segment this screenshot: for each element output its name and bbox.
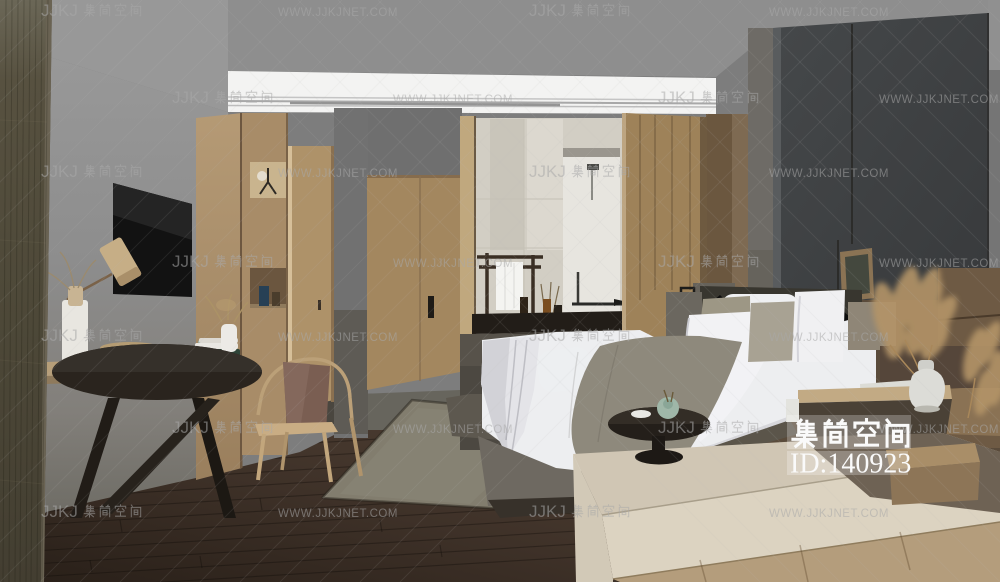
svg-text:ID:140923: ID:140923 <box>790 449 911 480</box>
